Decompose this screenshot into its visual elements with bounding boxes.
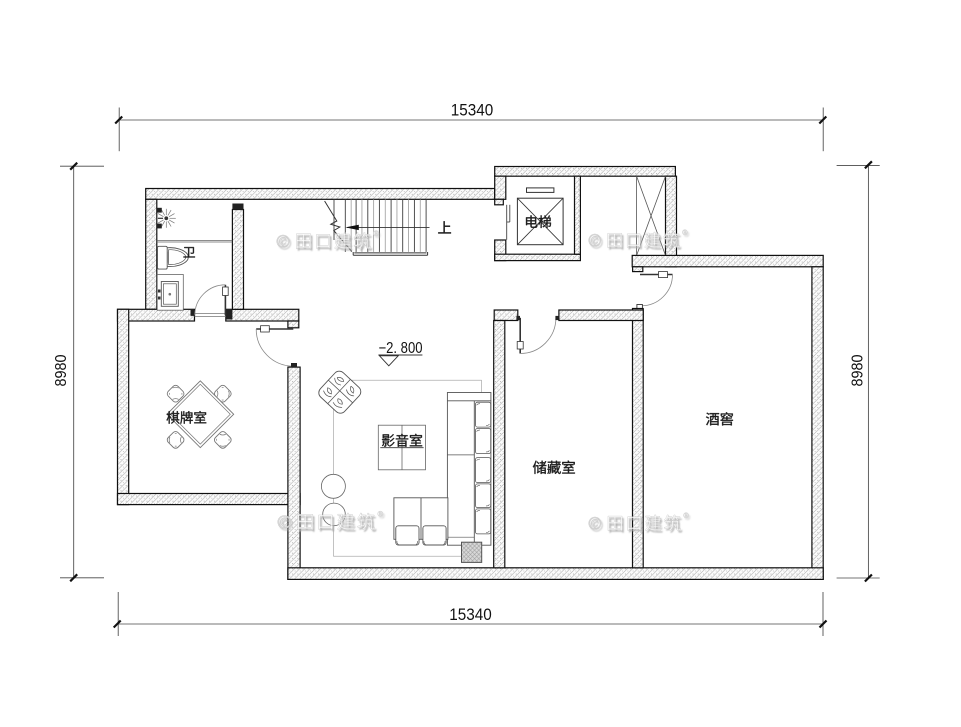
svg-text:®: ® xyxy=(378,509,384,518)
svg-text:®: ® xyxy=(682,228,688,237)
svg-text:©: © xyxy=(278,512,292,533)
svg-text:®: ® xyxy=(373,229,379,238)
svg-text:®: ® xyxy=(683,511,689,520)
svg-text:©: © xyxy=(277,232,290,252)
svg-text:−2. 800: −2. 800 xyxy=(379,340,423,357)
svg-text:15340: 15340 xyxy=(449,605,492,624)
svg-text:©: © xyxy=(589,514,602,534)
svg-text:8980: 8980 xyxy=(849,354,866,386)
svg-text:8980: 8980 xyxy=(53,354,70,386)
svg-text:©: © xyxy=(589,231,602,251)
svg-text:15340: 15340 xyxy=(451,101,494,120)
